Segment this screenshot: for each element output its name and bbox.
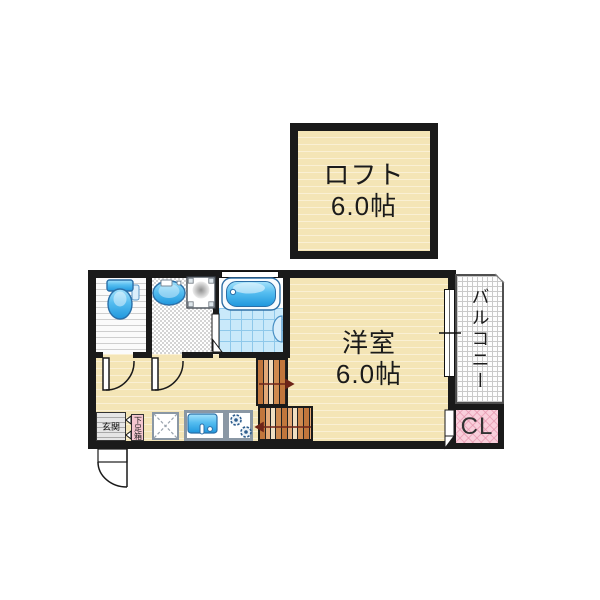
- gas-stove-unit: [226, 410, 253, 441]
- entrance: 玄関: [96, 412, 126, 441]
- staircase-lower-flight: [258, 406, 313, 441]
- bathroom-tiles: [219, 308, 283, 352]
- loft-size-label: 6.0帖: [331, 191, 397, 222]
- western-room-label-block: 洋室 6.0帖: [292, 328, 446, 390]
- room-label: 洋室: [292, 328, 446, 359]
- floor-plan: ロフト 6.0帖 玄関 下足箱 洋室 6.0帖 バルコニー CL: [0, 0, 600, 600]
- wall: [283, 278, 290, 358]
- shoe-cabinet: 下足箱: [131, 414, 144, 441]
- kitchen-sink-unit: [184, 410, 226, 441]
- wall: [96, 352, 103, 358]
- bathroom-window: [221, 271, 279, 278]
- balcony: バルコニー: [455, 274, 504, 404]
- loft-room: ロフト 6.0帖: [290, 123, 438, 259]
- wall: [182, 352, 213, 358]
- staircase-upper-flight: [256, 358, 288, 406]
- wall: [133, 352, 152, 358]
- appliance-space: [152, 412, 179, 440]
- entrance-label: 玄関: [102, 420, 120, 433]
- room-size-label: 6.0帖: [292, 359, 446, 390]
- closet: CL: [450, 404, 504, 449]
- toilet-room: [96, 278, 146, 354]
- washroom: [152, 278, 213, 354]
- closet-label: CL: [461, 413, 494, 441]
- loft-label: ロフト: [323, 160, 404, 191]
- balcony-label: バルコニー: [467, 287, 493, 392]
- entrance-door: [98, 449, 127, 487]
- shoe-cabinet-label: 下足箱: [133, 416, 143, 440]
